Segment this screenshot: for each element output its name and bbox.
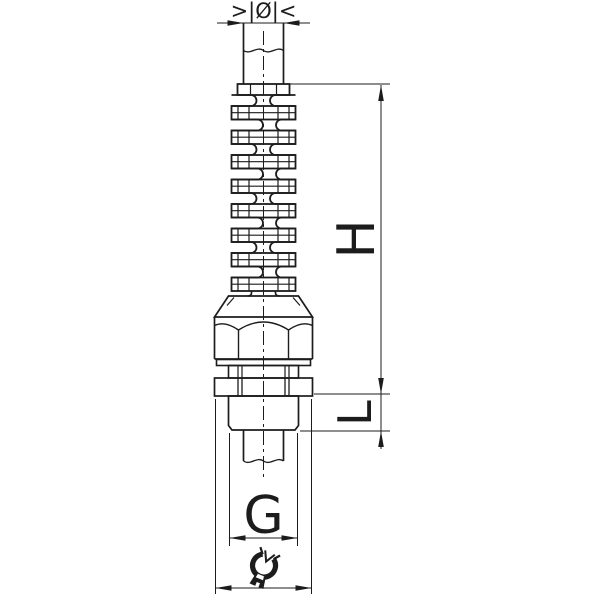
label-clamping-range: >|Ø|< xyxy=(231,0,297,24)
arrowhead xyxy=(216,585,232,591)
arrowhead xyxy=(296,585,312,591)
label-length: L xyxy=(328,400,382,426)
dim-length: L xyxy=(300,400,390,447)
arrowhead xyxy=(282,535,298,541)
arrowhead xyxy=(378,85,384,101)
open-end-wrench-icon xyxy=(245,547,281,591)
technical-drawing: >|Ø|< xyxy=(0,0,600,600)
label-height: H xyxy=(327,219,387,258)
dim-height: H xyxy=(290,84,390,449)
technical-drawing-page: >|Ø|< xyxy=(0,0,600,600)
dim-diameter: >|Ø|< xyxy=(217,0,310,26)
arrowhead xyxy=(378,431,384,447)
arrowhead xyxy=(378,378,384,394)
label-thread: G xyxy=(243,486,283,546)
